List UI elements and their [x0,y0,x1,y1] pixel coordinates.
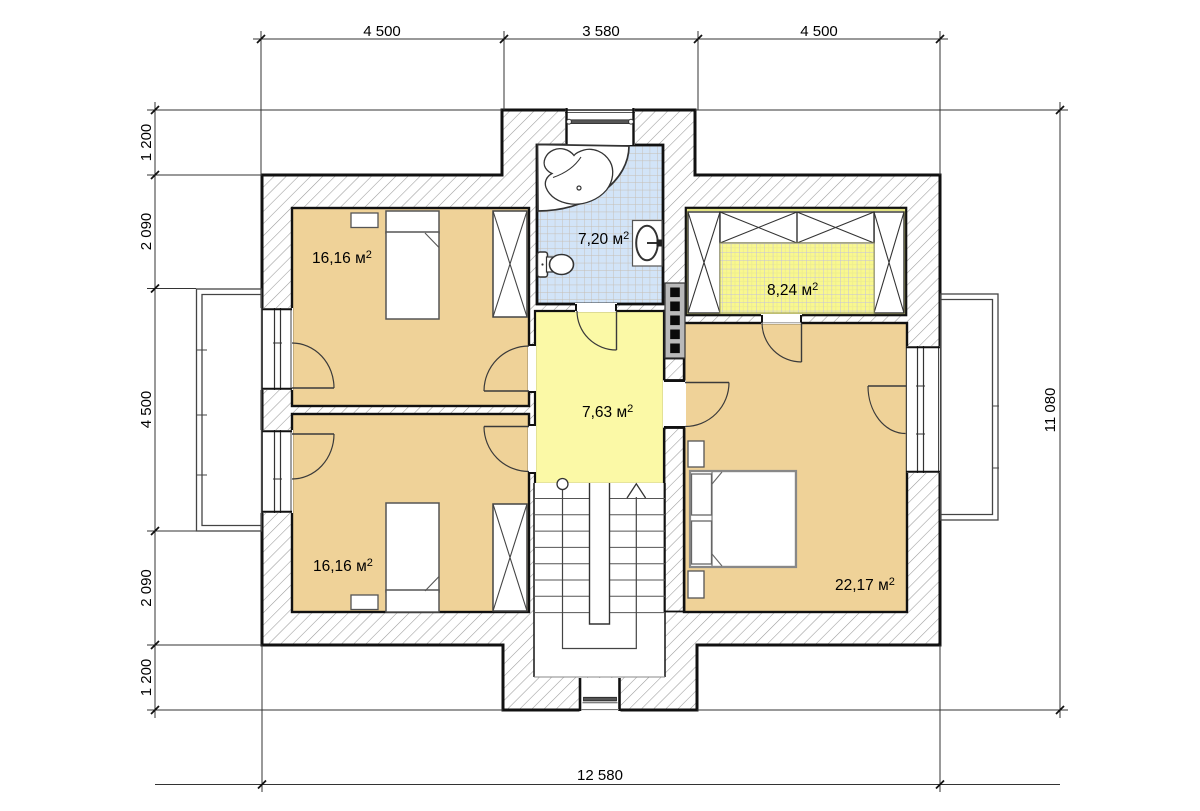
svg-text:7,20 м2: 7,20 м2 [578,230,629,248]
svg-text:12 580: 12 580 [577,767,623,784]
svg-text:22,17 м2: 22,17 м2 [835,576,895,594]
svg-text:2 090: 2 090 [138,213,155,251]
svg-text:16,16 м2: 16,16 м2 [313,557,373,575]
svg-text:8,24 м2: 8,24 м2 [767,281,818,299]
svg-text:7,63 м2: 7,63 м2 [582,403,633,421]
svg-text:4 500: 4 500 [138,391,155,429]
svg-text:2 090: 2 090 [138,569,155,607]
svg-text:4 500: 4 500 [800,23,838,40]
svg-text:1 200: 1 200 [138,124,155,162]
svg-text:11 080: 11 080 [1042,388,1059,433]
svg-text:3 580: 3 580 [582,23,620,40]
svg-text:16,16 м2: 16,16 м2 [312,249,372,267]
svg-text:1 200: 1 200 [138,659,155,697]
svg-text:4 500: 4 500 [363,23,401,40]
